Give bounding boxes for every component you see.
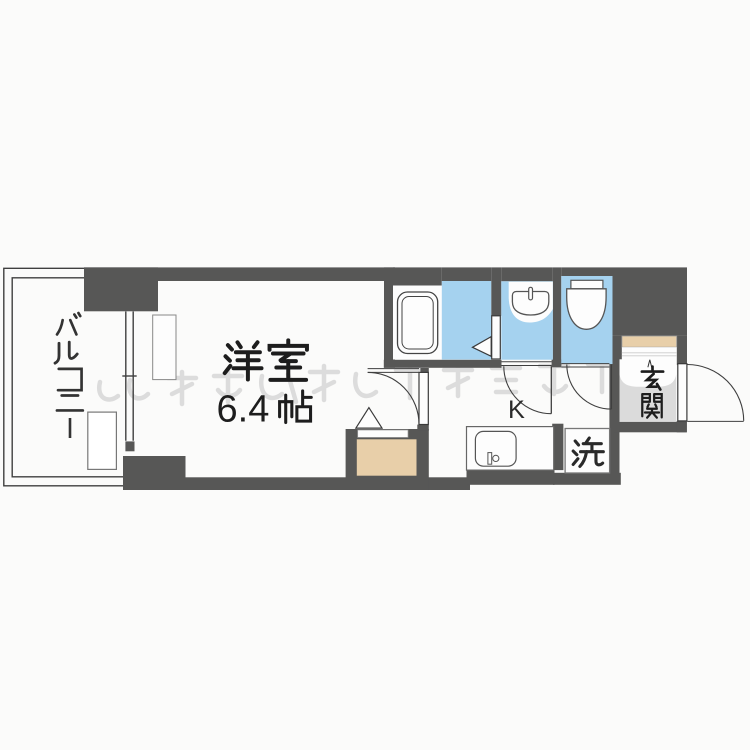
svg-text:6.4: 6.4: [217, 389, 270, 431]
svg-text:K: K: [508, 396, 525, 424]
